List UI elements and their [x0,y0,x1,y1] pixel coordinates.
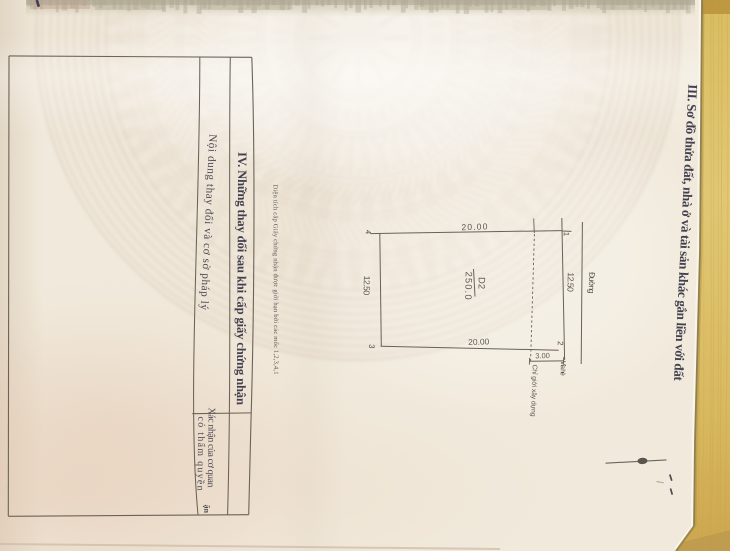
svg-text:250.0: 250.0 [463,271,474,299]
svg-text:có thẩm quyền: có thẩm quyền [194,416,206,490]
svg-text:3: 3 [367,344,376,349]
svg-text:1: 1 [562,232,571,237]
svg-text:12.50: 12.50 [361,276,372,296]
svg-text:12.50: 12.50 [565,272,576,292]
svg-text:Diện tích cấp Giấy chứng nhận: Diện tích cấp Giấy chứng nhận được giới … [272,184,280,374]
svg-text:IV. Những thay đổi sau khi cấp: IV. Những thay đổi sau khi cấp giấy chứn… [234,152,249,405]
svg-text:Vỉa hè: Vỉa hè [559,361,567,376]
svg-text:Chỉ giới xây dựng: Chỉ giới xây dựng [529,364,539,416]
svg-text:3.00: 3.00 [535,351,550,360]
svg-text:Đường: Đường [587,272,597,294]
svg-text:D2: D2 [476,277,486,289]
svg-text:ận: ận [202,504,211,513]
svg-text:20.00: 20.00 [468,336,490,347]
svg-text:20.00: 20.00 [461,221,488,232]
svg-text:2: 2 [556,341,565,346]
